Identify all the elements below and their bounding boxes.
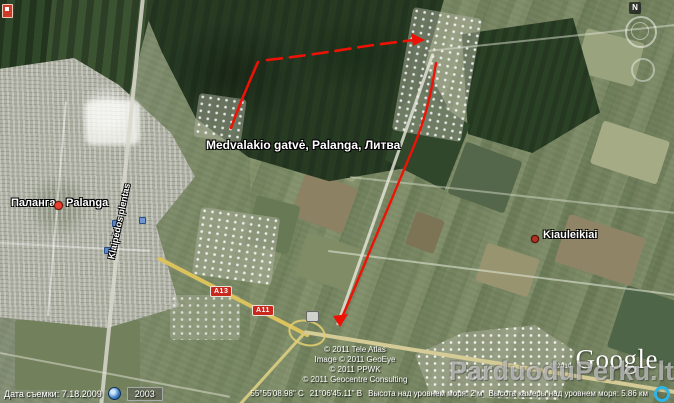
status-right: 55°55'08.98" С 21°06'45.11" В Высота над… [250,386,670,402]
suburb-grid [192,207,281,285]
map-overlay-icon[interactable] [306,311,319,322]
map-attribution: © 2011 Tele Atlas Image © 2011 GeoEye © … [255,345,455,385]
camera-altitude-value: Высота камеры над уровнем моря: 5.86 км [489,389,648,398]
dark-red-dot-placemark-icon[interactable] [531,235,539,243]
look-ring-inner-icon[interactable] [631,22,649,40]
search-result-label[interactable]: Medvalakio gatvė, Palanga, Литва [206,138,400,152]
attribution-line: Image © 2011 GeoEye [255,355,455,365]
red-dot-placemark-icon[interactable] [54,201,63,210]
road-shield-a11: A11 [252,305,274,316]
latitude-value: 55°55'08.98" С [250,389,303,398]
blue-placemark-icon[interactable] [139,217,146,224]
google-earth-view: Medvalakio gatvė, Palanga, Литва Паланга… [0,0,674,403]
imagery-date: Дата съемки: 7.18.2009 [4,389,102,399]
overlay-placemark-icon[interactable] [2,4,13,18]
history-clock-icon[interactable] [108,387,121,400]
timeline-year-badge[interactable]: 2003 [127,387,163,401]
attribution-line: © 2011 PPWK [255,365,455,375]
buildings-cluster [193,93,247,143]
field-patch [15,320,140,390]
placemark-label-kiauleikiai[interactable]: Kiauleikiai [543,229,597,241]
site-watermark: ParduoduPerku.lt [449,356,674,387]
placemark-label-palanga-ru[interactable]: Паланга [11,197,55,209]
pan-joystick-icon[interactable] [631,58,655,82]
status-bar: Дата съемки: 7.18.2009 2003 55°55'08.98"… [0,386,674,401]
village-cluster [170,295,240,340]
longitude-value: 21°06'45.11" В [310,389,362,398]
status-left: Дата съемки: 7.18.2009 2003 [4,387,163,401]
elevation-value: Высота над уровнем моря: 2 м [368,389,482,398]
compass-north-icon[interactable]: N [629,2,641,14]
attribution-line: © 2011 Tele Atlas [255,345,455,355]
streaming-progress-icon [654,386,670,402]
attribution-line: © 2011 Geocentre Consulting [255,375,455,385]
placemark-label-palanga-lt[interactable]: Palanga [66,197,108,209]
road-shield-a13: A13 [210,286,232,297]
